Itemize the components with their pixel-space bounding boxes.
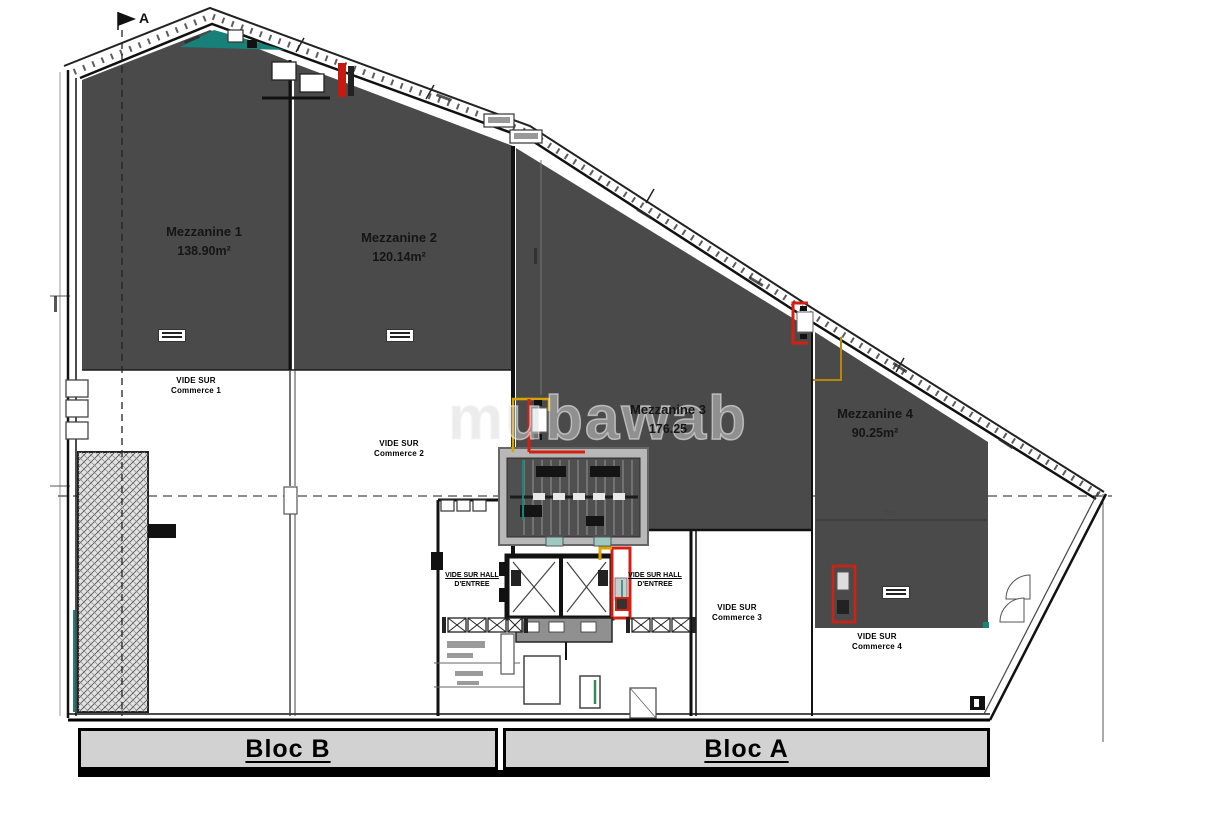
level-marker xyxy=(158,329,186,342)
mezzanine-3-name: Mezzanine 3 xyxy=(630,400,706,420)
mezzanine-4-area: 90.25m² xyxy=(837,424,913,443)
void-commerce-3-label: VIDE SUR Commerce 3 xyxy=(712,603,762,623)
bloc-a-bar: Bloc A xyxy=(503,728,990,770)
hall-a-line2: D'ENTREE xyxy=(628,580,682,589)
hall-b-line2: D'ENTREE xyxy=(445,580,499,589)
level-marker xyxy=(386,329,414,342)
mezzanine-1-area: 138.90m² xyxy=(166,242,242,261)
hall-label-bloc-a: VIDE SUR HALL D'ENTREE xyxy=(628,571,682,589)
mezzanine-2-name: Mezzanine 2 xyxy=(361,228,437,248)
mezzanine-4-label: Mezzanine 4 90.25m² xyxy=(837,404,913,442)
tol-label: TOL xyxy=(884,510,898,517)
mezzanine-3-area: 176.25 xyxy=(630,420,706,439)
mezzanine-2-label: Mezzanine 2 120.14m² xyxy=(361,228,437,266)
void-commerce-4-label: VIDE SUR Commerce 4 xyxy=(852,632,902,652)
dimension-text xyxy=(534,248,537,264)
void-2-line2: Commerce 2 xyxy=(374,449,424,459)
hall-label-bloc-b: VIDE SUR HALL D'ENTREE xyxy=(445,571,499,589)
void-1-line2: Commerce 1 xyxy=(171,386,221,396)
mezzanine-1-label: Mezzanine 1 138.90m² xyxy=(166,222,242,260)
hall-a-line1: VIDE SUR HALL xyxy=(628,571,682,580)
void-3-line1: VIDE SUR xyxy=(712,603,762,613)
void-4-line1: VIDE SUR xyxy=(852,632,902,642)
mezzanine-4-name: Mezzanine 4 xyxy=(837,404,913,424)
void-3-line2: Commerce 3 xyxy=(712,613,762,623)
mezzanine-2-area: 120.14m² xyxy=(361,248,437,267)
void-1-line1: VIDE SUR xyxy=(171,376,221,386)
bloc-a-label: Bloc A xyxy=(704,735,788,764)
level-marker xyxy=(882,586,910,599)
watermark: mubawab xyxy=(448,383,788,454)
void-2-line1: VIDE SUR xyxy=(374,439,424,449)
void-commerce-2-label: VIDE SUR Commerce 2 xyxy=(374,439,424,459)
hall-b-line1: VIDE SUR HALL xyxy=(445,571,499,580)
void-commerce-1-label: VIDE SUR Commerce 1 xyxy=(171,376,221,396)
bars-base-line xyxy=(78,770,990,777)
mezzanine-3-label: Mezzanine 3 176.25 xyxy=(630,400,706,438)
mezzanine-1-name: Mezzanine 1 xyxy=(166,222,242,242)
bloc-b-label: Bloc B xyxy=(245,735,330,764)
void-4-line2: Commerce 4 xyxy=(852,642,902,652)
bloc-b-bar: Bloc B xyxy=(78,728,498,770)
floor-plan-canvas: mubawab A Mezzanine 1 138.90m² Mezzanine… xyxy=(0,0,1216,825)
dimension-text xyxy=(54,296,57,312)
section-marker-label: A xyxy=(139,10,149,26)
